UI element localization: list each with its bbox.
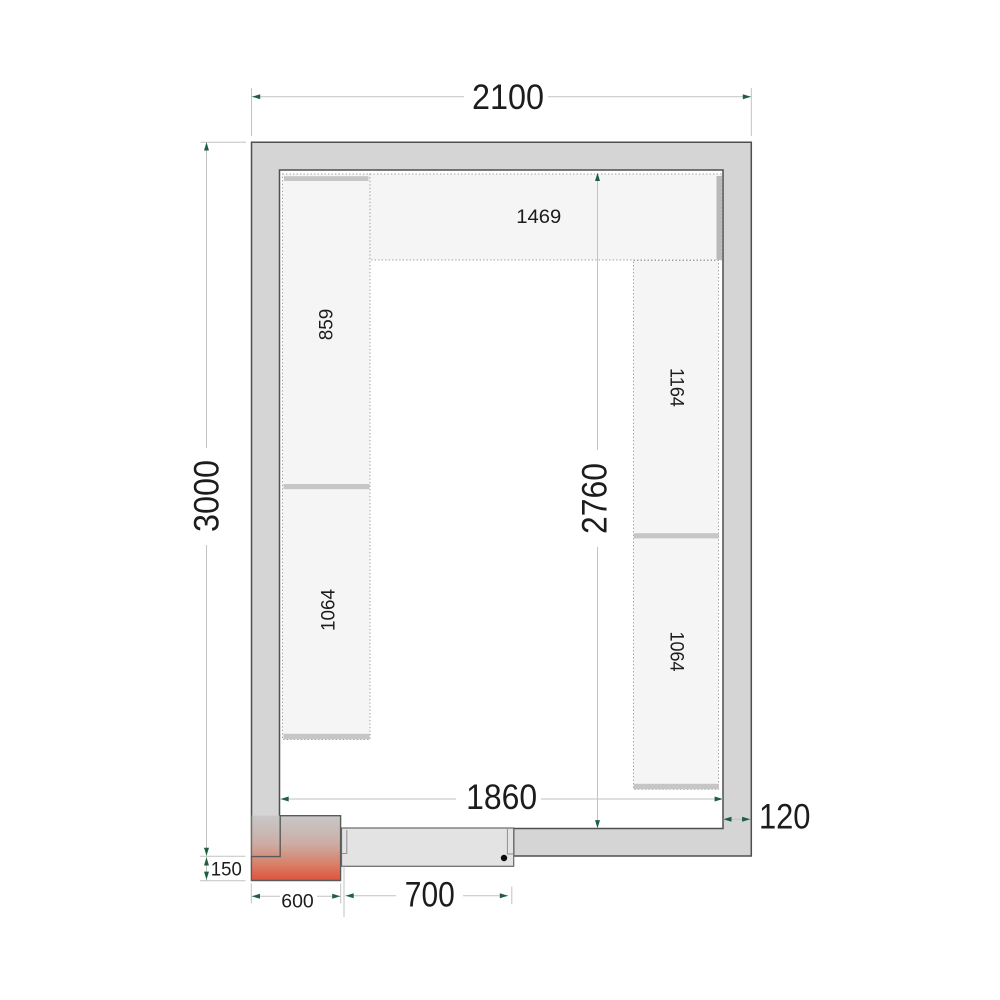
svg-text:1469: 1469 — [516, 206, 561, 228]
svg-text:700: 700 — [405, 876, 455, 915]
svg-text:1064: 1064 — [318, 589, 340, 631]
svg-text:2760: 2760 — [576, 463, 615, 534]
svg-text:2100: 2100 — [472, 78, 544, 117]
svg-text:859: 859 — [316, 309, 338, 341]
svg-text:600: 600 — [281, 890, 314, 912]
svg-text:3000: 3000 — [188, 460, 227, 532]
svg-text:150: 150 — [211, 858, 242, 880]
svg-text:1164: 1164 — [666, 368, 688, 407]
svg-text:1064: 1064 — [666, 632, 688, 672]
svg-text:1860: 1860 — [466, 778, 537, 817]
svg-text:120: 120 — [759, 798, 811, 837]
